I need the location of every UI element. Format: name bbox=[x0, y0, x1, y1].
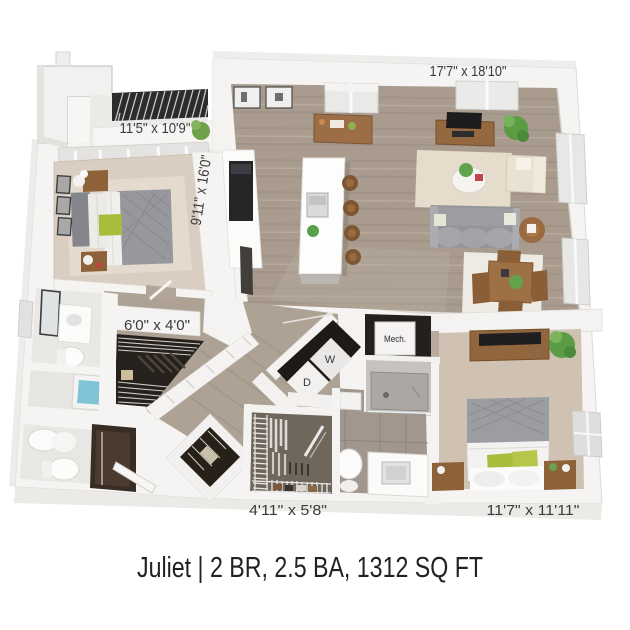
svg-text:4'11" x 5'8": 4'11" x 5'8" bbox=[249, 502, 327, 519]
svg-text:Juliet | 2 BR, 2.5 BA, 1312 SQ: Juliet | 2 BR, 2.5 BA, 1312 SQ FT bbox=[137, 552, 483, 584]
svg-text:D: D bbox=[303, 377, 311, 389]
svg-text:Mech.: Mech. bbox=[384, 334, 406, 344]
svg-text:W: W bbox=[325, 354, 336, 366]
svg-text:6'0" x 4'0": 6'0" x 4'0" bbox=[124, 317, 190, 334]
svg-text:11'7" x 11'11": 11'7" x 11'11" bbox=[487, 502, 580, 519]
svg-text:17'7" x 18'10": 17'7" x 18'10" bbox=[430, 63, 507, 80]
svg-text:11'5" x 10'9": 11'5" x 10'9" bbox=[120, 120, 191, 137]
